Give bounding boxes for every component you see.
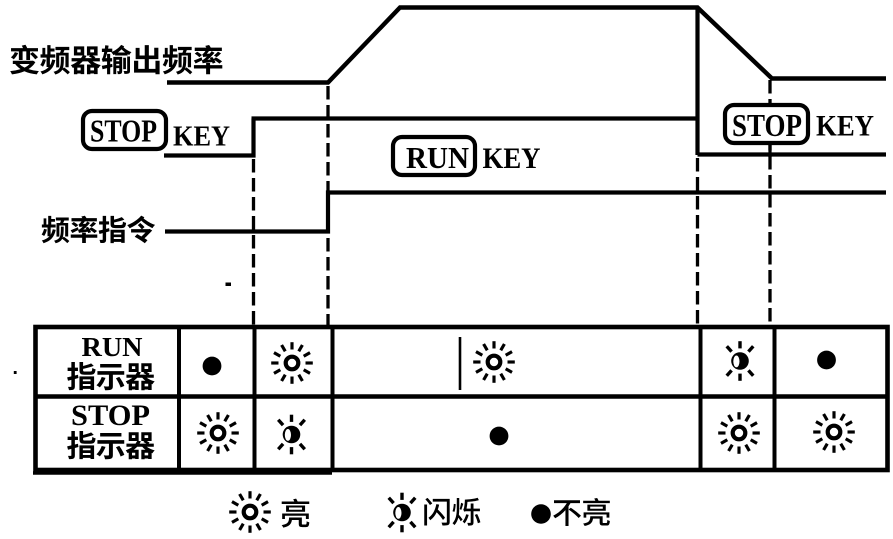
- svg-text:STOP: STOP: [71, 399, 150, 432]
- svg-text:STOP: STOP: [732, 107, 802, 143]
- svg-text:KEY: KEY: [483, 142, 541, 175]
- svg-text:KEY: KEY: [173, 121, 230, 153]
- svg-text:KEY: KEY: [816, 110, 874, 143]
- svg-text:RUN: RUN: [406, 140, 469, 175]
- svg-text:RUN: RUN: [82, 332, 144, 362]
- svg-text:STOP: STOP: [90, 113, 157, 149]
